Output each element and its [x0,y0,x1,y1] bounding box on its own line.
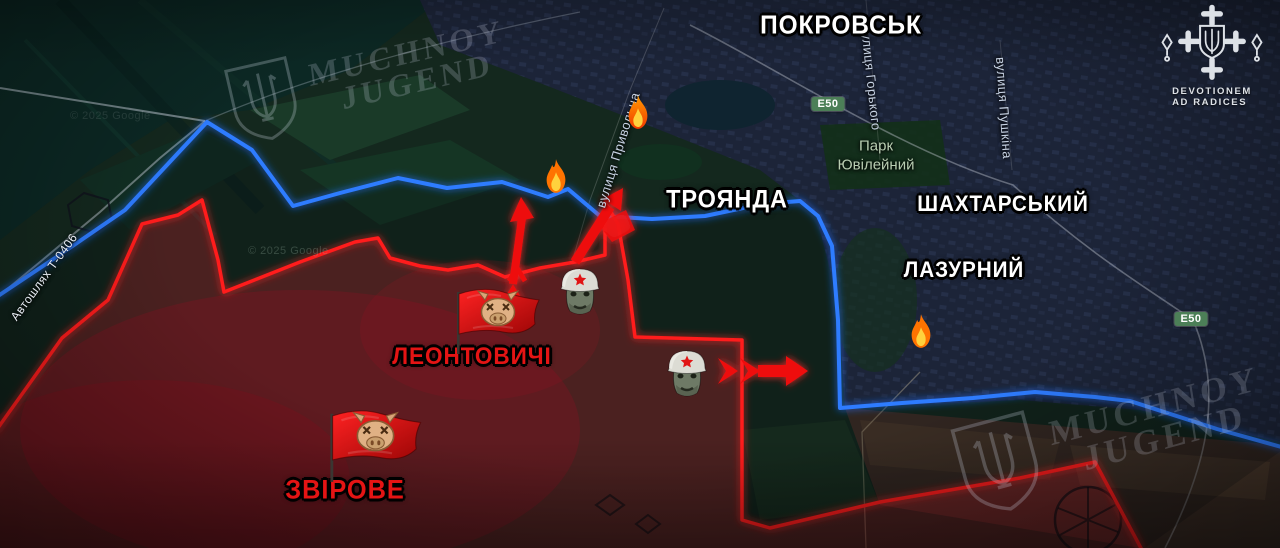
park-label-line1: Парк [838,137,915,156]
fire-icon [541,157,571,195]
helmet-icon [555,263,605,319]
flag-icon [443,286,543,364]
road-badge-e50: E50 [1174,312,1207,326]
park-label: Парк Ювілейний [838,137,915,175]
helmet-icon [662,345,712,401]
road-badge-e50: E50 [811,97,844,111]
city-label-pokrovsk: ПОКРОВСЬК [760,10,922,41]
logo-motto: DEVOTIONEM AD RADICES [1172,86,1252,108]
google-attribution: © 2025 Google [70,110,151,122]
channel-logo [1150,2,1274,95]
flag-icon [315,407,425,493]
fire-icon [906,312,936,350]
emblem-icon [1150,2,1274,90]
city-label-shakhtarskyi: ШАХТАРСЬКИЙ [917,191,1089,217]
map-viewport[interactable]: © 2025 Google © 2025 Google вулиця Приво… [0,0,1280,548]
city-label-troianda: ТРОЯНДА [666,186,788,215]
city-label-lazurnyi: ЛАЗУРНИЙ [904,257,1024,283]
fire-icon [623,93,653,131]
park-label-line2: Ювілейний [838,156,915,175]
google-attribution: © 2025 Google [248,245,329,257]
satellite-map [0,0,1280,548]
